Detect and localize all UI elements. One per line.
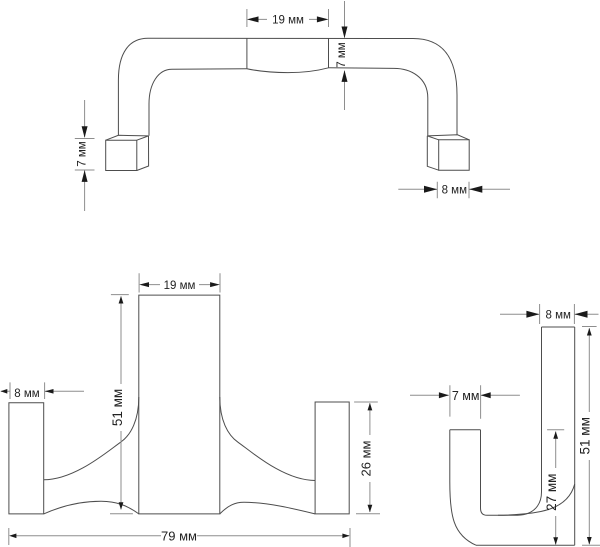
svg-text:7 мм: 7 мм [336, 42, 348, 67]
svg-text:19 мм: 19 мм [272, 15, 304, 27]
svg-text:7 мм: 7 мм [77, 141, 89, 166]
svg-text:27 мм: 27 мм [544, 474, 559, 511]
svg-text:26 мм: 26 мм [358, 440, 373, 476]
svg-text:51 мм: 51 мм [578, 417, 593, 454]
svg-text:8 мм: 8 мм [14, 388, 39, 400]
svg-text:19 мм: 19 мм [164, 280, 196, 292]
svg-text:8 мм: 8 мм [442, 184, 467, 196]
svg-text:7 мм: 7 мм [452, 389, 480, 403]
svg-text:79 мм: 79 мм [161, 528, 197, 543]
svg-text:51 мм: 51 мм [110, 389, 125, 426]
svg-text:8 мм: 8 мм [545, 309, 570, 321]
